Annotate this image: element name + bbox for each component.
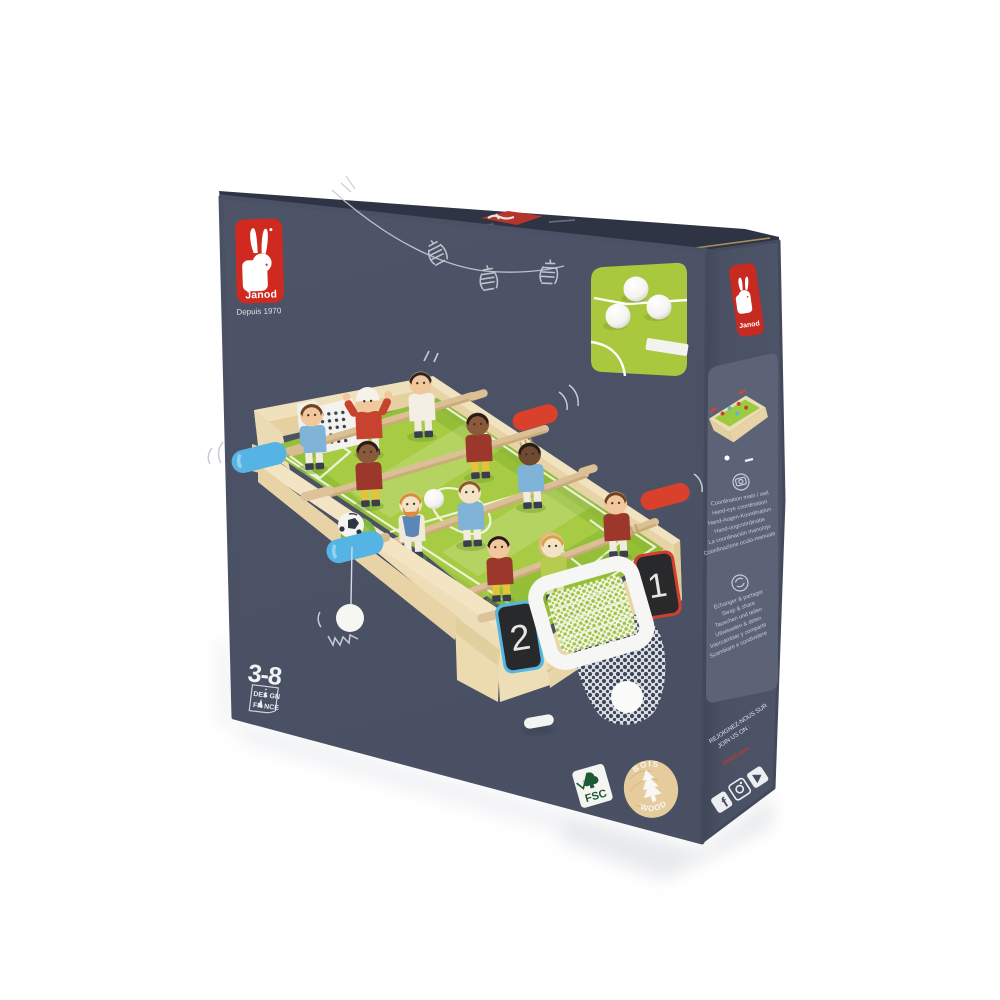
svg-text:Depuis 1970: Depuis 1970 <box>236 306 282 317</box>
svg-text:Janod: Janod <box>245 288 277 301</box>
